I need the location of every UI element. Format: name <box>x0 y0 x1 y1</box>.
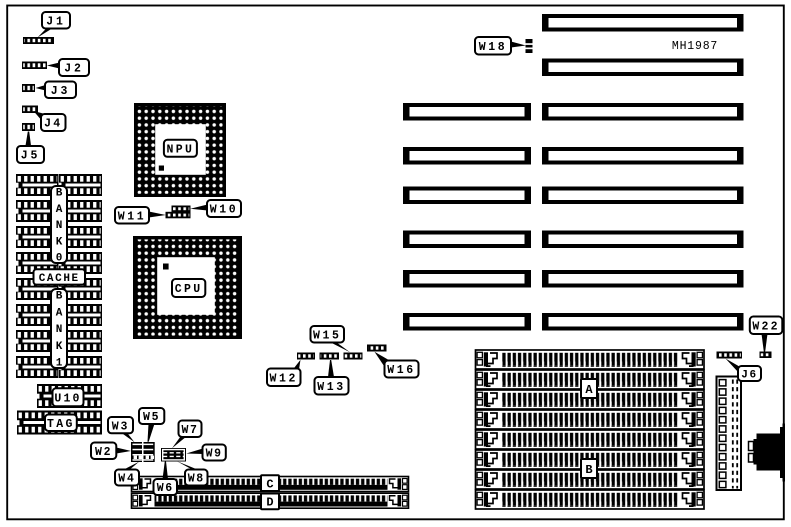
svg-text:1: 1 <box>56 358 63 370</box>
svg-text:W7: W7 <box>181 424 198 437</box>
svg-text:A: A <box>585 383 593 397</box>
svg-text:A: A <box>56 307 63 319</box>
svg-text:N: N <box>56 324 63 336</box>
svg-text:J1: J1 <box>46 15 65 28</box>
svg-text:W9: W9 <box>206 448 223 461</box>
svg-text:W6: W6 <box>157 482 174 495</box>
svg-text:A: A <box>56 204 63 216</box>
svg-text:W22: W22 <box>752 320 779 333</box>
svg-text:J6: J6 <box>741 369 757 381</box>
svg-text:W11: W11 <box>118 210 147 223</box>
svg-text:D: D <box>266 496 273 510</box>
svg-text:CPU: CPU <box>175 283 203 296</box>
svg-text:0: 0 <box>56 253 63 265</box>
svg-text:K: K <box>56 341 63 353</box>
svg-text:K: K <box>56 236 63 248</box>
svg-text:W4: W4 <box>118 473 135 486</box>
svg-text:C: C <box>266 477 273 491</box>
svg-text:W2: W2 <box>95 446 112 459</box>
svg-text:W10: W10 <box>210 204 239 217</box>
svg-text:W12: W12 <box>269 372 298 385</box>
svg-text:B: B <box>585 463 592 477</box>
svg-text:TAG: TAG <box>47 418 75 431</box>
svg-text:W15: W15 <box>313 329 342 342</box>
svg-text:J3: J3 <box>51 85 70 98</box>
svg-text:W13: W13 <box>317 381 346 394</box>
svg-text:CACHE: CACHE <box>39 273 80 285</box>
svg-text:B: B <box>56 291 63 303</box>
svg-text:NPU: NPU <box>166 143 194 156</box>
svg-text:J5: J5 <box>21 150 40 163</box>
svg-text:W16: W16 <box>387 364 416 377</box>
svg-text:W5: W5 <box>143 411 160 424</box>
svg-text:J2: J2 <box>64 63 83 76</box>
svg-text:U10: U10 <box>54 392 81 405</box>
svg-text:B: B <box>56 188 63 200</box>
svg-text:MH1987: MH1987 <box>672 40 718 53</box>
svg-text:W8: W8 <box>188 473 205 486</box>
svg-text:J4: J4 <box>44 118 62 131</box>
svg-text:W18: W18 <box>479 41 508 54</box>
svg-text:N: N <box>56 220 63 232</box>
svg-text:W3: W3 <box>112 420 129 433</box>
